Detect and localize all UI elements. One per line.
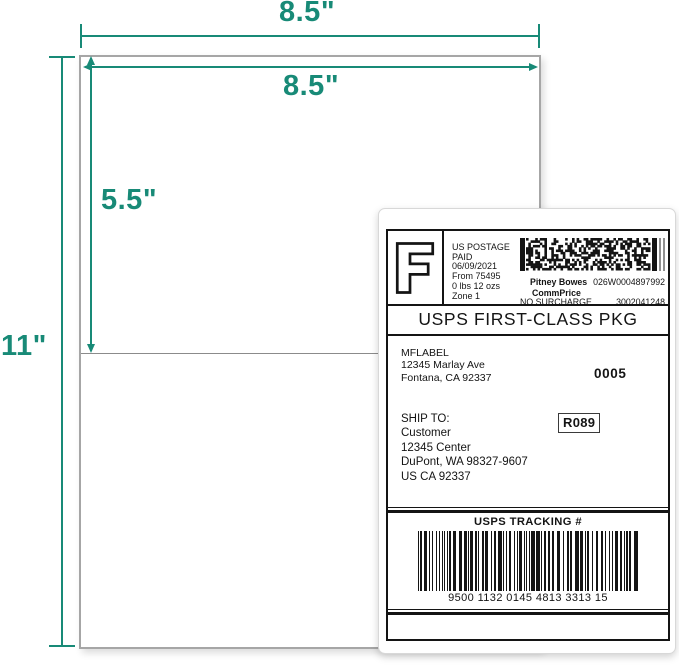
ship-to-heading: SHIP TO: [401, 412, 528, 426]
label-height-dimension-arrow [90, 58, 92, 351]
tracking-barcode-icon [418, 531, 638, 591]
carrier-name: Pitney Bowes [530, 278, 587, 288]
recipient-country: US CA 92337 [401, 470, 528, 484]
batch-number: 0005 [594, 366, 626, 381]
sender-name: MFLABEL [401, 347, 492, 359]
recipient-city: DuPont, WA 98327-9607 [401, 455, 528, 469]
barcode-matrix-icon [526, 238, 651, 271]
meter-row: Pitney Bowes 026W0004897992 [520, 278, 668, 288]
sender-address-block: MFLABEL 12345 Marlay Ave Fontana, CA 923… [401, 347, 492, 384]
barcode-end-bar [520, 238, 525, 271]
sheet-width-dimension-line [80, 35, 540, 37]
sheet-width-dimension-label: 8.5" [279, 0, 335, 29]
ship-to-address-block: SHIP TO: Customer 12345 Center DuPont, W… [401, 412, 528, 484]
barcode-end-bar [652, 238, 657, 271]
route-code-box: R089 [558, 413, 600, 433]
recipient-street: 12345 Center [401, 441, 528, 455]
shipping-label-card: US POSTAGE PAID 06/09/2021 From 75495 0 … [378, 208, 676, 654]
label-footer-empty-box [388, 615, 668, 639]
sender-street: 12345 Marlay Ave [401, 359, 492, 371]
tracking-heading: USPS TRACKING # [388, 513, 668, 528]
sheet-height-dimension-line [61, 56, 63, 647]
barcode-gray-bar [663, 238, 665, 271]
meter-2d-barcode [520, 238, 665, 271]
label-width-dimension-label: 8.5" [283, 69, 339, 103]
meter-block: Pitney Bowes 026W0004897992 CommPrice NO… [520, 231, 668, 304]
label-height-dimension-label: 5.5" [101, 183, 157, 217]
recipient-name: Customer [401, 426, 528, 440]
shipping-label-border-box: US POSTAGE PAID 06/09/2021 From 75495 0 … [386, 229, 670, 641]
tracking-number: 9500 1132 0145 4813 3313 15 [388, 592, 668, 604]
postage-header-section: US POSTAGE PAID 06/09/2021 From 75495 0 … [388, 231, 668, 306]
tracking-section: USPS TRACKING # 9500 1132 0145 4813 3313… [388, 513, 668, 609]
postage-line: Zone 1 [452, 292, 520, 302]
sheet-height-dimension-label: 11" [1, 329, 47, 363]
sender-city: Fontana, CA 92337 [401, 372, 492, 384]
postage-indicia-f-icon [388, 231, 444, 304]
service-class-banner: USPS FIRST-CLASS PKG [388, 306, 668, 336]
address-section: MFLABEL 12345 Marlay Ave Fontana, CA 923… [388, 336, 668, 507]
label-width-dimension-arrow [85, 66, 536, 68]
meter-number: 026W0004897992 [593, 278, 665, 288]
barcode-gray-bar [659, 238, 661, 271]
postage-info-block: US POSTAGE PAID 06/09/2021 From 75495 0 … [444, 231, 520, 304]
